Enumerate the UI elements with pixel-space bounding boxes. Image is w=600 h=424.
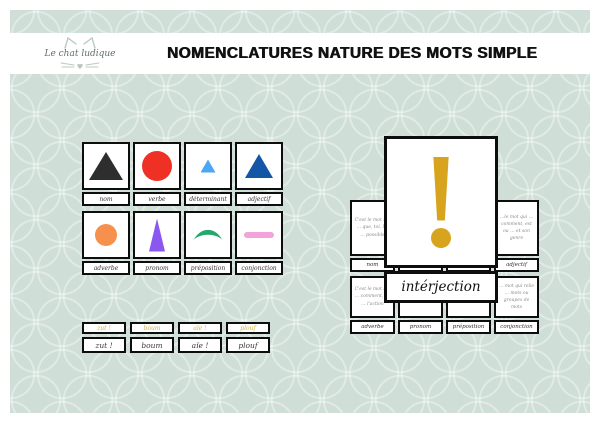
symbol-card-body — [184, 211, 232, 259]
exclamation-dot-icon — [431, 228, 451, 248]
exclamation-mark-icon — [429, 157, 453, 221]
adjective-triangle-symbol — [245, 154, 273, 178]
word-strip-row-gold: zut ! boum aïe ! plouf — [82, 322, 270, 334]
symbol-card-pronom: pronom — [133, 211, 181, 275]
symbol-card-determinant: déterminant — [184, 142, 232, 206]
word-strip: zut ! — [82, 337, 126, 353]
symbol-card-adverbe: adverbe — [82, 211, 130, 275]
interjection-card-body — [384, 136, 498, 268]
word-strip: boum — [130, 322, 174, 334]
symbol-card-preposition: préposition — [184, 211, 232, 275]
word-strip: plouf — [226, 337, 270, 353]
symbol-card-grid: nom verbe déterminant adjectif adverbe — [82, 142, 283, 275]
conjunction-bar-symbol — [244, 232, 274, 238]
symbol-card-label: nom — [82, 192, 130, 206]
cat-whiskers-heart-icon — [60, 60, 100, 70]
flyer-page: Le chat ludique NOMENCLATURES NATURE DES… — [0, 0, 600, 424]
noun-triangle-symbol — [89, 152, 123, 180]
symbol-card-body — [235, 211, 283, 259]
definition-text: … mot qui relie … mots ou groupes de mot… — [494, 276, 539, 318]
page-title: NOMENCLATURES NATURE DES MOTS SIMPLE — [190, 33, 514, 74]
symbol-card-label: conjonction — [235, 261, 283, 275]
symbol-card-body — [235, 142, 283, 190]
pronoun-triangle-symbol — [149, 219, 165, 252]
symbol-card-body — [133, 142, 181, 190]
determiner-triangle-symbol — [201, 160, 216, 173]
interjection-big-card: intérjection — [384, 136, 498, 303]
logo-text: Le chat ludique — [44, 50, 115, 59]
preposition-crescent-symbol — [193, 229, 223, 241]
symbol-card-conjonction: conjonction — [235, 211, 283, 275]
word-strip: aïe ! — [178, 337, 222, 353]
symbol-card-verbe: verbe — [133, 142, 181, 206]
symbol-card-body — [82, 142, 130, 190]
definition-card-label: pronom — [398, 320, 443, 334]
symbol-card-body — [184, 142, 232, 190]
symbol-card-body — [82, 211, 130, 259]
definition-card-label: préposition — [446, 320, 491, 334]
word-strip-row-black: zut ! boum aïe ! plouf — [82, 337, 270, 353]
symbol-card-nom: nom — [82, 142, 130, 206]
symbol-card-label: adverbe — [82, 261, 130, 275]
word-strip: plouf — [226, 322, 270, 334]
cat-ears-icon — [63, 37, 97, 49]
definition-card-adjectif: …le mot qui … comment, est ou … et son g… — [494, 200, 539, 272]
word-strip: aïe ! — [178, 322, 222, 334]
definition-card-label: adjectif — [494, 258, 539, 272]
definition-card-label: adverbe — [350, 320, 395, 334]
symbol-card-body — [133, 211, 181, 259]
symbol-card-label: pronom — [133, 261, 181, 275]
word-strip: zut ! — [82, 322, 126, 334]
word-strip: boum — [130, 337, 174, 353]
interjection-card-label: intérjection — [384, 271, 498, 303]
symbol-card-adjectif: adjectif — [235, 142, 283, 206]
header-band: Le chat ludique NOMENCLATURES NATURE DES… — [10, 33, 590, 74]
symbol-card-label: verbe — [133, 192, 181, 206]
definition-text: …le mot qui … comment, est ou … et son g… — [494, 200, 539, 256]
adverb-circle-symbol — [95, 224, 117, 246]
definition-card-conjonction: … mot qui relie … mots ou groupes de mot… — [494, 276, 539, 334]
verb-circle-symbol — [142, 151, 172, 181]
symbol-card-label: adjectif — [235, 192, 283, 206]
symbol-card-label: déterminant — [184, 192, 232, 206]
definition-card-label: conjonction — [494, 320, 539, 334]
symbol-card-label: préposition — [184, 261, 232, 275]
logo: Le chat ludique — [32, 34, 128, 73]
